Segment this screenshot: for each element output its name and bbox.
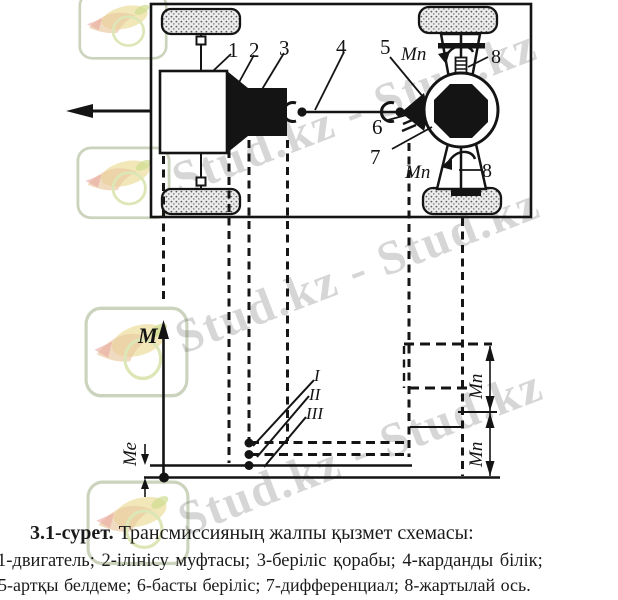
figure-title: Трансмиссияның жалпы қызмет схемасы: — [114, 522, 474, 544]
origin-dot — [159, 473, 169, 483]
gearbox-box — [248, 88, 287, 136]
label-wheel-torque-dim-lower: Мп — [466, 442, 487, 468]
scanned-figure-page: Stud.kz - Stud.kz Stud.kz - Stud.kz Stud… — [0, 0, 618, 600]
label-gear-3: III — [305, 404, 324, 423]
differential-gear — [434, 84, 488, 138]
mp-dim-arrow-1 — [486, 345, 495, 361]
label-differential: 7 — [370, 145, 381, 169]
label-gear-2: II — [308, 385, 322, 404]
universal-joint-front-pin — [297, 107, 306, 116]
wheel-hub-bottom — [451, 190, 481, 196]
label-torque-axis: M — [137, 323, 159, 348]
label-engine: 1 — [228, 38, 239, 62]
label-engine-torque: Ме — [120, 442, 141, 467]
wheel-front-left — [162, 9, 240, 34]
wheel-rear-left — [419, 7, 497, 33]
travel-direction-arrow-head — [66, 104, 93, 118]
axle-joint-top — [197, 37, 206, 45]
figure-caption: 3.1-сурет. Трансмиссияның жалпы қызмет с… — [30, 522, 474, 545]
figure-legend-line-2: 5-артқы белдеме; 6-басты беріліс; 7-дифф… — [0, 575, 531, 596]
leader-gear1 — [253, 380, 314, 446]
transmission-diagram: Stud.kz - Stud.kz Stud.kz - Stud.kz Stud… — [0, 0, 618, 600]
label-half-shaft-top: 8 — [491, 46, 501, 68]
leader-differential — [392, 127, 432, 149]
label-rear-axle: 5 — [380, 35, 391, 59]
me-dim-upper-arrow — [141, 454, 149, 465]
label-final-drive: 6 — [372, 115, 383, 139]
label-wheel-torque-top: Мп — [400, 44, 426, 65]
engine-box — [160, 71, 227, 153]
label-clutch: 2 — [249, 38, 260, 62]
studkz-logo-icon — [80, 0, 166, 58]
label-driveshaft: 4 — [336, 35, 347, 59]
label-half-shaft-bottom: 8 — [482, 160, 492, 182]
label-wheel-torque-dim-upper: Мп — [466, 374, 487, 400]
label-gearbox: 3 — [279, 36, 290, 60]
final-drive-tick-2 — [402, 125, 416, 131]
figure-legend-line-1: 1-двигатель; 2-ілінісу муфтасы; 3-берілі… — [0, 551, 543, 572]
label-gear-1: I — [313, 366, 321, 385]
gear3-dot — [245, 461, 254, 470]
studkz-logo-icon — [78, 148, 169, 218]
axle-joint-bottom — [197, 178, 206, 186]
figure-number: 3.1-сурет. — [30, 522, 114, 544]
